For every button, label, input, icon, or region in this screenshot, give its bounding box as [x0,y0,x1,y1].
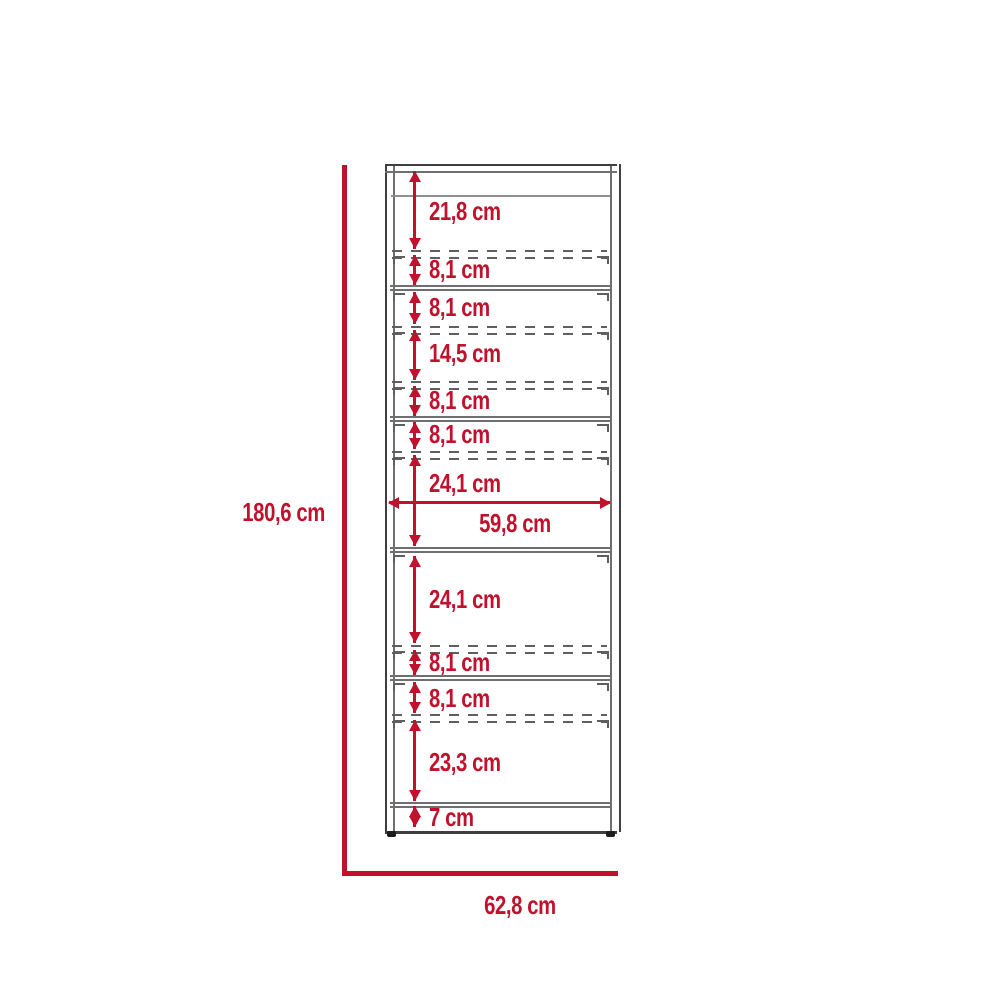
dimension-arrow [413,386,416,416]
shelf-pin-icon [393,651,405,659]
adjustable-shelf-dashed-line [392,721,607,723]
dimension-arrow [413,171,416,249]
dimension-label: 8,1 cm [429,386,507,414]
dimension-label: 14,5 cm [429,339,521,367]
shelf-line [390,547,611,553]
shelf-pin-icon [393,555,405,563]
shelf-pin-icon [393,720,405,728]
shelf-pin-icon [597,651,609,659]
adjustable-shelf-dashed-line [392,714,607,716]
shelf-pin-icon [393,332,405,340]
shelf-pin-icon [597,387,609,395]
shelf-line [390,285,611,291]
shelf-pin-icon [597,683,609,691]
shelf-pin-icon [393,424,405,432]
dimension-label: 8,1 cm [429,293,507,321]
shelf-pin-icon [597,293,609,301]
shelf-pin-icon [393,387,405,395]
cabinet-right-panel [610,164,621,832]
shelf-pin-icon [597,332,609,340]
overall-height-dimension-line [342,165,347,876]
shelf-pin-icon [597,256,609,264]
adjustable-shelf-dashed-line [392,250,607,252]
dimension-arrow [413,292,416,324]
dimension-label: 8,1 cm [429,420,507,448]
dimension-label: 8,1 cm [429,684,507,712]
inner-width-label: 59,8 cm [425,509,605,537]
shelf-pin-icon [597,424,609,432]
inner-width-dimension-arrow [389,501,610,504]
dimension-arrow [413,255,416,285]
dimension-arrow [413,556,416,643]
adjustable-shelf-dashed-line [392,326,607,328]
shelf-pin-icon [393,457,405,465]
dimension-arrow [413,650,416,675]
dimension-label: 23,3 cm [429,748,521,776]
dimension-label: 24,1 cm [429,469,521,497]
dimension-label: 24,1 cm [429,585,521,613]
shelf-pin-icon [393,293,405,301]
overall-height-label: 180,6 cm [170,498,325,526]
shelf-line [390,802,611,808]
cabinet-foot-left [387,831,396,837]
dimension-arrow [413,720,416,801]
adjustable-shelf-dashed-line [392,381,607,383]
shelf-pin-icon [597,457,609,465]
dimension-arrow [413,422,416,449]
adjustable-shelf-dashed-line [392,333,607,335]
dimension-label: 21,8 cm [429,197,521,225]
overall-width-label: 62,8 cm [430,891,610,919]
shelf-pin-icon [597,555,609,563]
cabinet-bottom-edge [385,828,617,834]
overall-width-dimension-line [342,871,618,876]
dimension-diagram: 180,6 cm 62,8 cm 21,8 cm 8,1 cm 8,1 cm 1… [0,0,1000,1000]
adjustable-shelf-dashed-line [392,458,607,460]
dimension-label: 8,1 cm [429,255,507,283]
shelf-pin-icon [597,720,609,728]
shelf-pin-icon [393,683,405,691]
dimension-label: 7 cm [429,803,486,831]
dimension-arrow [413,806,416,827]
dimension-label: 8,1 cm [429,648,507,676]
dimension-arrow [413,330,416,380]
shelf-pin-icon [393,256,405,264]
dimension-arrow [413,682,416,713]
adjustable-shelf-dashed-line [392,451,607,453]
adjustable-shelf-dashed-line [392,645,607,647]
cabinet-foot-right [606,831,615,837]
